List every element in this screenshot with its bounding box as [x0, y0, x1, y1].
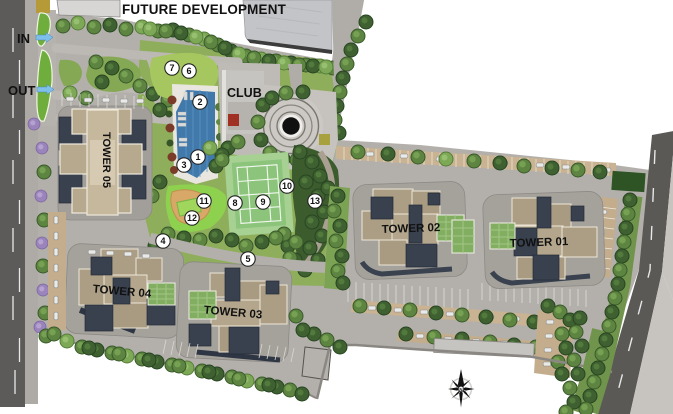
svg-text:7: 7 [169, 63, 174, 73]
svg-text:TOWER 05: TOWER 05 [100, 132, 112, 188]
svg-text:1: 1 [195, 152, 200, 162]
svg-text:12: 12 [187, 213, 197, 223]
svg-text:10: 10 [282, 181, 292, 191]
svg-text:13: 13 [310, 196, 320, 206]
svg-text:IN: IN [17, 31, 30, 46]
svg-text:OUT: OUT [8, 83, 36, 98]
svg-text:CLUB: CLUB [227, 86, 262, 100]
svg-text:4: 4 [160, 236, 165, 246]
svg-text:FUTURE DEVELOPMENT: FUTURE DEVELOPMENT [122, 1, 286, 17]
svg-text:11: 11 [199, 196, 209, 206]
svg-text:TOWER 01: TOWER 01 [510, 236, 570, 250]
svg-text:N: N [459, 387, 462, 392]
svg-text:9: 9 [260, 197, 265, 207]
svg-text:TOWER 02: TOWER 02 [382, 222, 441, 236]
svg-text:3: 3 [181, 160, 186, 170]
svg-text:6: 6 [186, 66, 191, 76]
svg-text:2: 2 [197, 97, 202, 107]
svg-text:5: 5 [245, 254, 250, 264]
svg-text:8: 8 [232, 198, 237, 208]
